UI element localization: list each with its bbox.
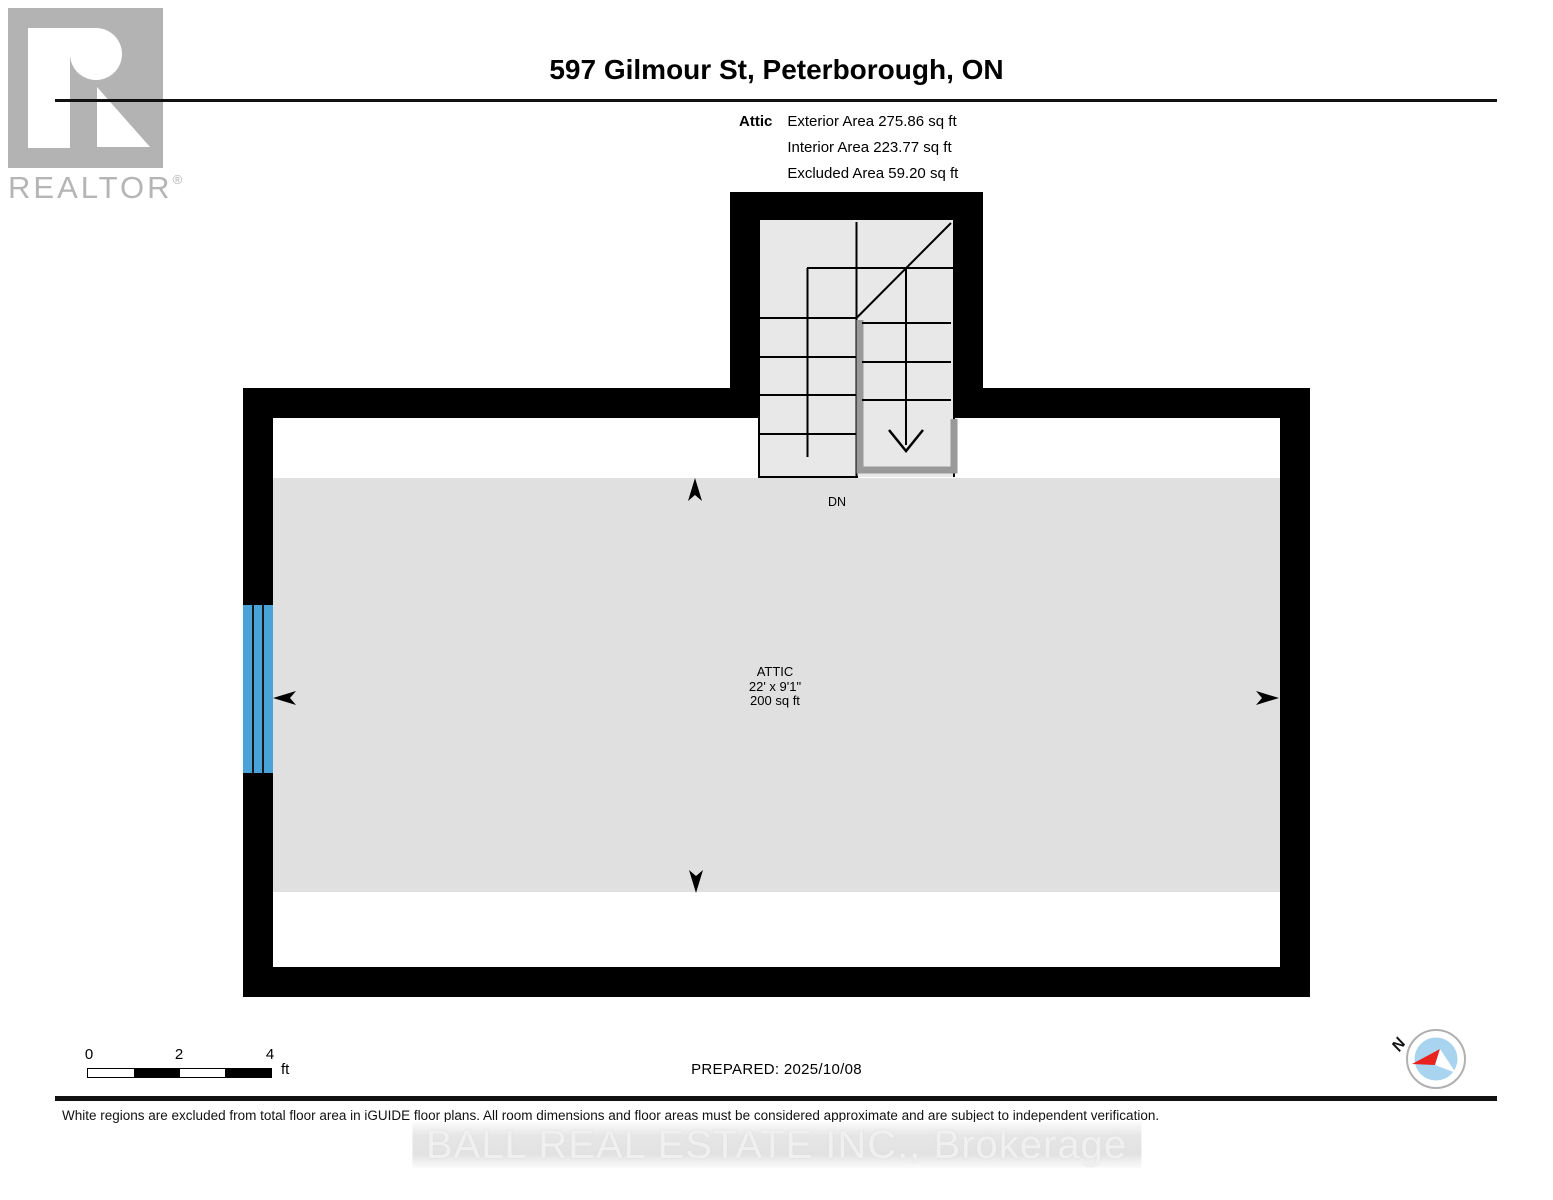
room-area: 200 sq ft <box>749 694 801 709</box>
page-title: 597 Gilmour St, Peterborough, ON <box>549 54 1003 86</box>
room-label: ATTIC 22' x 9'1" 200 sq ft <box>749 665 801 709</box>
interior-area: Interior Area 223.77 sq ft <box>787 135 958 161</box>
area-summary: Attic Exterior Area 275.86 sq ft Interio… <box>739 109 958 187</box>
window <box>243 605 273 773</box>
registered-mark: ® <box>173 172 183 187</box>
staircase-area <box>758 220 955 477</box>
scale-tick-2: 2 <box>175 1046 183 1063</box>
compass-icon: N <box>1388 1022 1476 1098</box>
disclaimer-text: White regions are excluded from total fl… <box>62 1108 1159 1123</box>
footer-divider <box>55 1096 1497 1101</box>
title-divider <box>55 99 1497 102</box>
scale-bar <box>87 1068 272 1078</box>
prepared-date: PREPARED: 2025/10/08 <box>691 1061 862 1078</box>
compass-north-label: N <box>1389 1035 1410 1055</box>
floor-label: Attic <box>739 109 772 187</box>
brokerage-watermark: BALL REAL ESTATE INC., Brokerage <box>412 1122 1141 1168</box>
scale-unit: ft <box>281 1061 289 1078</box>
room-name: ATTIC <box>749 665 801 680</box>
realtor-logo-wordmark: REALTOR® <box>8 170 218 206</box>
excluded-area: Excluded Area 59.20 sq ft <box>787 161 958 187</box>
realtor-logo-icon <box>8 8 163 168</box>
exterior-area: Exterior Area 275.86 sq ft <box>787 109 958 135</box>
stair-down-label: DN <box>828 495 846 509</box>
scale-tick-0: 0 <box>85 1046 93 1063</box>
floor-plan-page: REALTOR® 597 Gilmour St, Peterborough, O… <box>0 0 1553 1200</box>
scale-tick-4: 4 <box>266 1046 274 1063</box>
room-dimensions: 22' x 9'1" <box>749 680 801 695</box>
